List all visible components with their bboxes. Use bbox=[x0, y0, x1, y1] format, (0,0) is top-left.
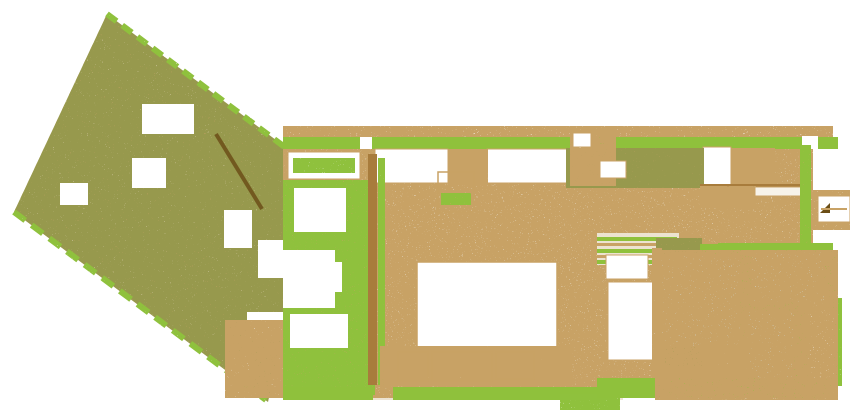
entry-box-2 bbox=[600, 161, 626, 178]
sunbed-small bbox=[606, 255, 648, 279]
pier-speckle-1 bbox=[448, 149, 488, 185]
room-nook-1 bbox=[294, 188, 346, 232]
garden-clearing-2 bbox=[132, 158, 166, 188]
room-nook-3 bbox=[302, 262, 342, 292]
site-plan-image bbox=[0, 0, 850, 413]
hedge-bottom-left-a bbox=[283, 387, 373, 400]
garden-clearing-4 bbox=[224, 210, 252, 248]
stairs-rail-left bbox=[591, 233, 597, 265]
terrace-rug bbox=[417, 262, 557, 347]
window-1-planter bbox=[293, 158, 355, 173]
window-2 bbox=[375, 149, 448, 183]
right-room-speckle bbox=[700, 186, 756, 208]
pier-speckle-2 bbox=[731, 148, 775, 188]
window-5 bbox=[703, 147, 731, 186]
floor-plan-canvas bbox=[0, 0, 850, 413]
pool-speckle-overlay bbox=[655, 250, 838, 400]
sunbed-large bbox=[608, 282, 658, 360]
drive-speckle bbox=[225, 320, 285, 398]
dividing-wall bbox=[368, 154, 377, 385]
top-fringe-speckle bbox=[283, 126, 833, 138]
garden-clearing-3 bbox=[60, 183, 88, 205]
room-nook-4 bbox=[290, 314, 348, 348]
garden-clearing-1 bbox=[142, 104, 194, 134]
hedge-top-gap-left bbox=[360, 137, 372, 149]
window-3 bbox=[487, 149, 568, 183]
right-room-table bbox=[755, 187, 803, 196]
right-room-hedge-east bbox=[800, 145, 811, 255]
entry-box-1 bbox=[573, 133, 591, 147]
cafe-table-slats bbox=[441, 193, 471, 205]
